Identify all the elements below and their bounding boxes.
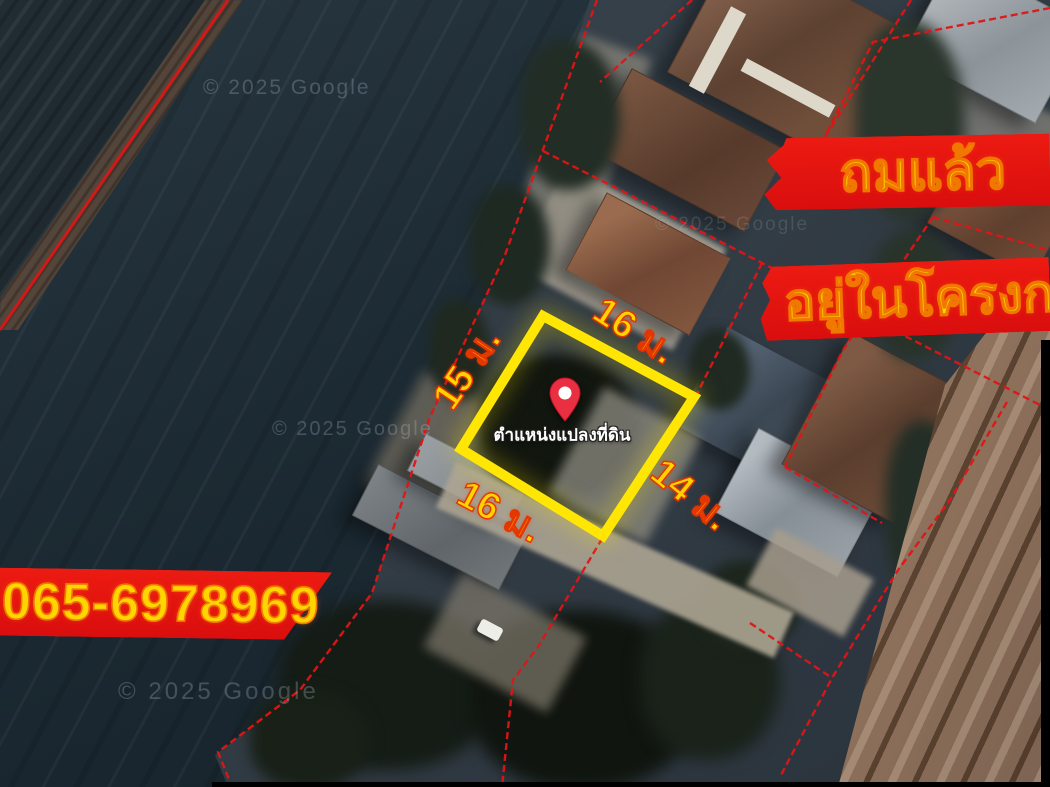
map-annotations	[0, 0, 1050, 787]
banner-status-project: อยู่ในโครงการ	[759, 257, 1050, 341]
location-pin-icon	[550, 378, 580, 421]
banner-status-project-text: อยู่ในโครงการ	[759, 265, 1050, 332]
property-boundary-line	[600, 0, 692, 82]
property-boundary-line	[823, 8, 1050, 140]
property-boundary-line	[750, 623, 832, 678]
property-boundary-line	[785, 467, 882, 523]
property-boundary-line	[785, 217, 933, 467]
google-watermark: © 2025 Google	[272, 418, 433, 441]
field-boundary-line	[0, 0, 228, 330]
property-boundary-line	[780, 402, 1007, 777]
plot-marker-label: ตำแหน่งแปลงที่ดิน	[493, 422, 630, 449]
property-boundary-line	[823, 0, 911, 140]
banner-phone-text: 065-6978969	[0, 574, 320, 633]
map-edge-mask-right	[1041, 340, 1050, 787]
satellite-map: 16 ม. 15 ม. 16 ม. 14 ม. ตำแหน่งแปลงที่ดิ…	[0, 0, 1050, 787]
google-watermark: © 2025 Google	[203, 76, 371, 100]
google-watermark: © 2025 Google	[118, 678, 319, 706]
banner-status-filled-text: ถมแล้ว	[839, 141, 1050, 201]
banner-status-filled: ถมแล้ว	[763, 134, 1050, 211]
google-watermark: © 2025 Google	[655, 214, 809, 236]
banner-phone: 065-6978969	[0, 568, 342, 641]
property-boundary-line	[933, 217, 1048, 250]
map-edge-mask-bottom	[212, 782, 1050, 787]
property-boundary-line	[218, 0, 597, 787]
